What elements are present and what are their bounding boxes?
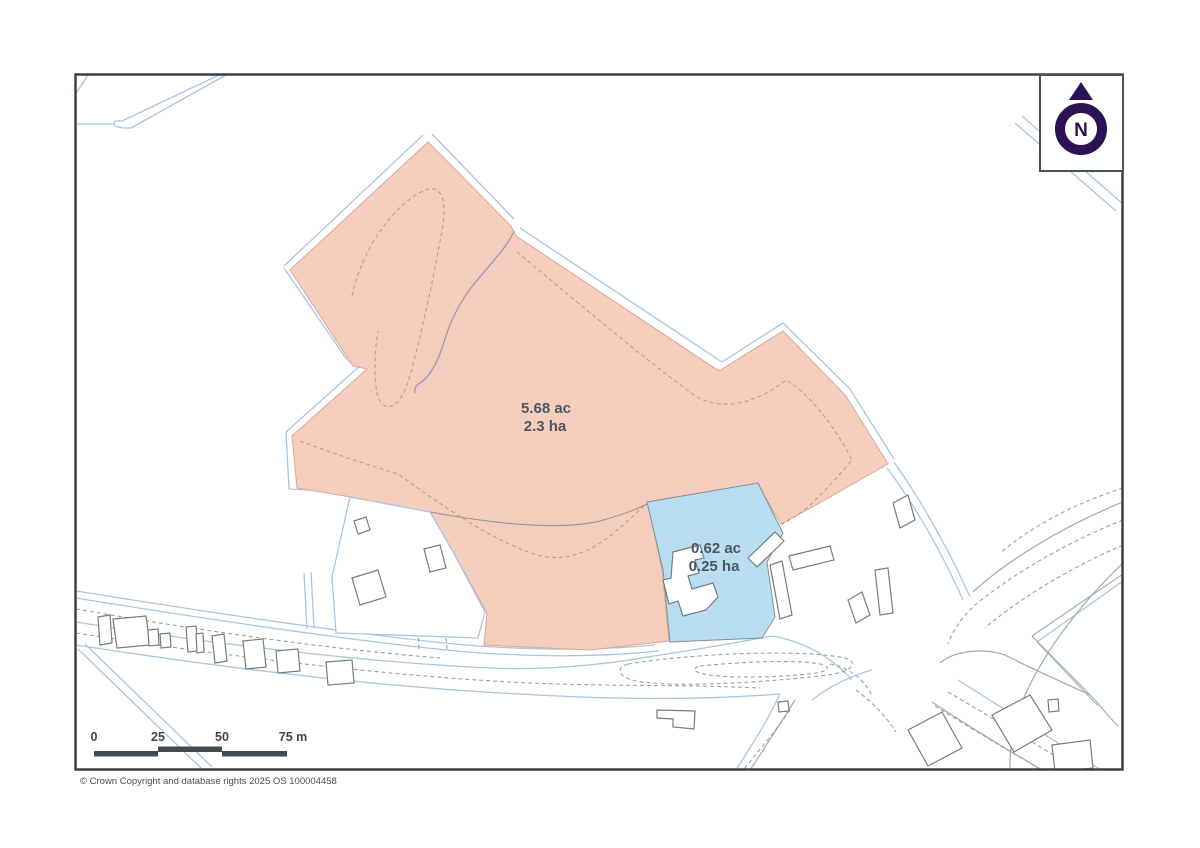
building — [196, 633, 204, 653]
map-page: 5.68 ac 2.3 ha 0.62 ac 0.25 ha 0 25 50 7… — [0, 0, 1200, 848]
main-parcel-hectares-label: 2.3 ha — [524, 418, 567, 435]
scale-segment — [158, 747, 222, 753]
scale-segment — [222, 751, 287, 757]
north-indicator: N — [1040, 75, 1123, 171]
secondary-parcel-acres-label: 0.62 ac — [691, 540, 741, 557]
building — [276, 649, 300, 673]
building — [212, 634, 227, 663]
scale-tick-50: 50 — [215, 730, 229, 744]
building — [243, 639, 266, 669]
building — [326, 660, 354, 685]
building — [1052, 740, 1093, 772]
scale-tick-0: 0 — [91, 730, 98, 744]
main-parcel-acres-label: 5.68 ac — [521, 400, 571, 417]
building — [160, 633, 171, 648]
building — [1048, 699, 1059, 712]
building — [113, 616, 150, 648]
building — [98, 615, 112, 645]
north-letter: N — [1074, 120, 1088, 141]
building — [778, 701, 789, 712]
scale-segment — [94, 751, 158, 757]
map-canvas: 5.68 ac 2.3 ha 0.62 ac 0.25 ha 0 25 50 7… — [0, 0, 1200, 848]
secondary-parcel-hectares-label: 0.25 ha — [689, 558, 741, 575]
building — [148, 629, 159, 646]
copyright-text: © Crown Copyright and database rights 20… — [80, 776, 337, 787]
scale-tick-25: 25 — [151, 730, 165, 744]
scale-tick-75: 75 m — [279, 730, 308, 744]
